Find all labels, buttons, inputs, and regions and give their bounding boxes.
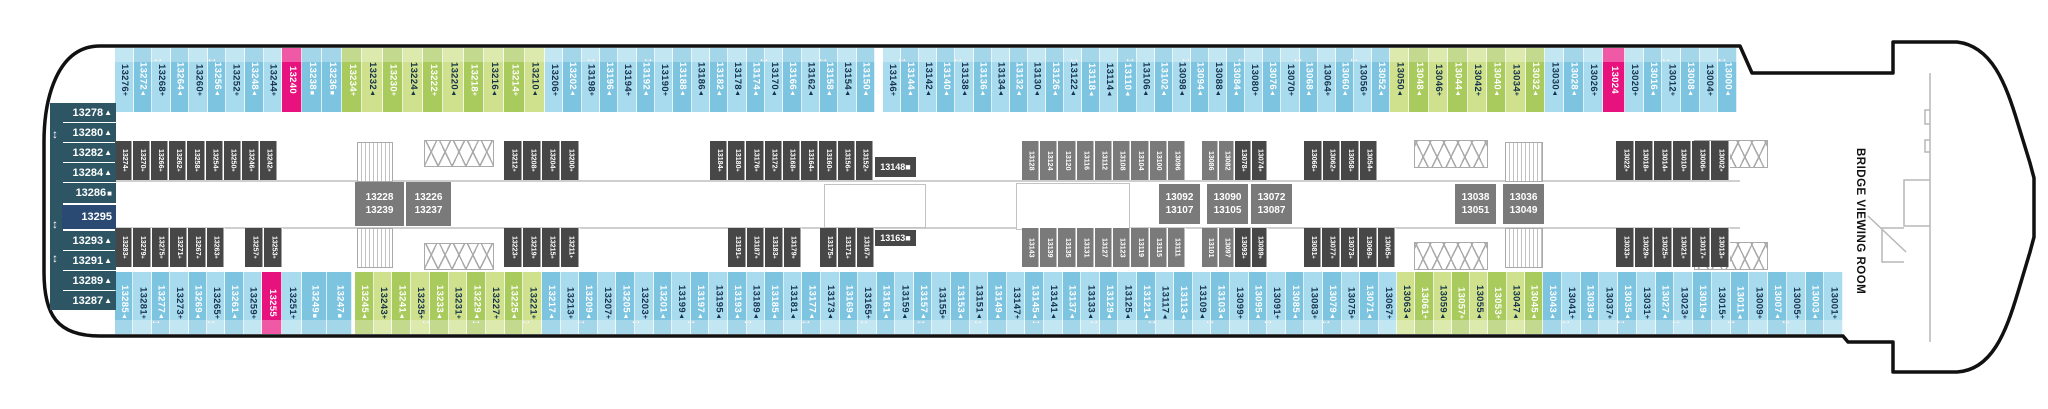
cabin-13210[interactable]: 13210▲ [525, 48, 545, 112]
cabin-13045[interactable]: 13045▲ [1525, 272, 1543, 334]
cabin-13173[interactable]: 13173▲ [821, 272, 840, 334]
cabin-13042[interactable]: 13042+ [1468, 48, 1487, 112]
cabin-13113[interactable]: 13113▲ [1174, 272, 1193, 334]
connecting-arrow-icon: ↔ [915, 314, 927, 326]
cabin-13168[interactable]: 13168+ [783, 141, 801, 180]
connecting-arrow-icon: ↔ [1124, 52, 1136, 64]
cabin-13118[interactable]: 13118▲ [1082, 48, 1100, 112]
plus-symbol: + [1347, 256, 1353, 259]
cabin-13253[interactable]: 13253+ [264, 228, 283, 267]
cabin-13057[interactable]: 13057+ [1452, 272, 1470, 334]
plus-symbol: + [1366, 169, 1372, 172]
cabin-13220[interactable]: 13220▲ [443, 48, 463, 112]
cabin-13212[interactable]: 13212+ [504, 141, 523, 180]
cabin-13241[interactable]: 13241▲ [392, 272, 411, 334]
cabin-number: 13118▲ [1087, 63, 1097, 98]
cabin-number: 13016▲ [1648, 62, 1658, 97]
cabin-13152[interactable]: 13152+ [856, 141, 874, 180]
cabin-number: 13077+ [1328, 236, 1336, 259]
cabin-13159[interactable]: 13159▲ [895, 272, 914, 334]
cabin-13137[interactable]: 13137▲ [1063, 272, 1082, 334]
cabin-13218[interactable]: 13218+ [464, 48, 484, 112]
cabin-13191[interactable]: 13191+ [728, 228, 747, 267]
cabin-13025[interactable]: 13025+ [1654, 228, 1673, 267]
cabin-13190[interactable]: 13190+ [655, 48, 673, 112]
cabin-number: 13258+ [193, 149, 201, 172]
cabin-13142[interactable]: 13142▲ [919, 48, 937, 112]
cabin-number: 13193▲ [732, 285, 742, 320]
cabin-13266[interactable]: 13266+ [151, 141, 169, 180]
cabin-13074[interactable]: 13074+ [1252, 141, 1269, 180]
cabin-13127[interactable]: 13127 [1095, 228, 1113, 267]
cabin-13018[interactable]: 13018+ [1635, 141, 1654, 180]
stairs-icon [357, 142, 393, 182]
cabin-number: 13262+ [175, 149, 183, 172]
cabin-13010[interactable]: 13010+ [1673, 141, 1692, 180]
cabin-13202[interactable]: 13202▲ [563, 48, 581, 112]
cabin-13062[interactable]: 13062+ [1323, 141, 1342, 180]
cabin-13271[interactable]: 13271+ [170, 228, 188, 267]
cabin-number: 13194+ [623, 64, 633, 96]
cabin-13186[interactable]: 13186▲ [692, 48, 710, 112]
cabin-13120[interactable]: 13120 [1058, 141, 1076, 180]
plus-symbol: + [1706, 92, 1713, 96]
cabin-13242[interactable]: 13242+ [260, 141, 278, 180]
cabin-13101[interactable]: 13101 [1202, 228, 1219, 267]
cabin-13054[interactable]: 13054+ [1360, 141, 1379, 180]
cabin-13058[interactable]: 13058+ [1341, 141, 1360, 180]
cabin-13104[interactable]: 13104 [1131, 141, 1149, 180]
cabin-13217[interactable]: 13217▲ [542, 272, 561, 334]
cabin-13283[interactable]: 13283+ [115, 228, 133, 267]
cabin-13176[interactable]: 13176+ [746, 141, 764, 180]
cabin-13219[interactable]: 13219+ [523, 228, 542, 267]
bottom-cabin-row-run: 13251+ [282, 272, 302, 334]
cabin-13178[interactable]: 13178▲ [728, 48, 746, 112]
cabin-13067[interactable]: 13067+ [1379, 272, 1398, 334]
cabin-13014[interactable]: 13014+ [1654, 141, 1673, 180]
cabin-13255[interactable]: 13255 [262, 272, 282, 334]
cabin-13169[interactable]: 13169▲ [840, 272, 859, 334]
cabin-13124[interactable]: 13124 [1040, 141, 1058, 180]
cabin-13167[interactable]: 13167+ [857, 228, 875, 267]
cabin-13249[interactable]: 13249■ [302, 272, 327, 334]
cabin-13078[interactable]: 13078+ [1235, 141, 1252, 180]
cabin-13128[interactable]: 13128 [1022, 141, 1040, 180]
cabin-number: 13131 [1082, 238, 1089, 257]
cabin-13130[interactable]: 13130▲ [1028, 48, 1046, 112]
cabin-13194[interactable]: 13194+ [618, 48, 636, 112]
plus-symbol: + [157, 169, 163, 172]
cabin-13129[interactable]: 13129▲ [1100, 272, 1119, 334]
cabin-13031[interactable]: 13031+ [1637, 272, 1656, 334]
cabin-13085[interactable]: 13085▲ [1286, 272, 1305, 334]
cabin-13029[interactable]: 13029+ [1635, 228, 1654, 267]
cabin-13247[interactable]: 13247■ [327, 272, 352, 334]
cabin-13250[interactable]: 13250+ [224, 141, 242, 180]
cabin-13245[interactable]: 13245▲ [355, 272, 374, 334]
cabin-13125[interactable]: 13125▲ [1118, 272, 1137, 334]
cabin-13064[interactable]: 13064+ [1318, 48, 1336, 112]
cabin-13092-13107[interactable]: 1309213107 [1159, 184, 1200, 224]
cabin-13102[interactable]: 13102▲ [1155, 48, 1173, 112]
cabin-number: 13263+ [212, 236, 220, 259]
cabin-13279[interactable]: 13279+ [133, 228, 151, 267]
cabin-13002[interactable]: 13002+ [1711, 141, 1730, 180]
cabin-13196[interactable]: 13196▲ [600, 48, 618, 112]
plus-symbol: + [789, 169, 795, 172]
bottom-cabin-row-run: 13043▲13041+13039▲13037+13035▲13031+1302… [1543, 272, 1843, 334]
cabin-number: 13110▲ [1123, 63, 1133, 98]
cabin-13182[interactable]: 13182▲ [710, 48, 728, 112]
lower-inside-row-run: 1314313139131351313113127131231311913115… [1022, 228, 1186, 267]
cabin-13276[interactable]: 13276+ [115, 48, 134, 112]
plus-symbol: + [551, 92, 558, 96]
plus-symbol: + [661, 92, 668, 96]
cabin-13172[interactable]: 13172+ [765, 141, 783, 180]
cabin-13216[interactable]: 13216▲ [484, 48, 504, 112]
plus-symbol: + [1717, 169, 1723, 172]
cabin-13291[interactable]: 13291▲ [62, 251, 116, 270]
triangle-symbol: ▲ [790, 313, 797, 320]
cabin-13264[interactable]: 13264▲ [171, 48, 190, 112]
plus-symbol: + [1236, 315, 1243, 319]
cabin-13106[interactable]: 13106▲ [1137, 48, 1155, 112]
cabin-13273[interactable]: 13273+ [170, 272, 188, 334]
cabin-number: 13132▲ [1014, 62, 1024, 97]
cabin-13278[interactable]: 13278▲ [62, 103, 116, 122]
cabin-13206[interactable]: 13206+ [545, 48, 563, 112]
triangle-symbol: ▲ [1124, 90, 1131, 97]
cabin-13155[interactable]: 13155+ [932, 272, 951, 334]
cabin-number: 13210▲ [530, 62, 540, 97]
cabin-13166[interactable]: 13166▲ [783, 48, 801, 112]
cabin-number: 13246+ [247, 149, 255, 172]
cabin-13233[interactable]: 13233▲ [430, 272, 449, 334]
cabin-13039[interactable]: 13039▲ [1581, 272, 1600, 334]
cabin-13282[interactable]: 13282▲ [62, 143, 116, 162]
cabin-13020[interactable]: 13020+ [1625, 48, 1644, 112]
cabin-13262[interactable]: 13262+ [169, 141, 187, 180]
cabin-13044[interactable]: 13044▲ [1448, 48, 1467, 112]
plus-symbol: + [1679, 256, 1685, 259]
triangle-symbol: ▲ [1396, 90, 1403, 97]
cabin-13240[interactable]: 13240 [282, 48, 302, 112]
cabin-13238[interactable]: 13238■ [302, 48, 322, 112]
plus-symbol: + [939, 315, 946, 319]
plus-symbol: + [1287, 92, 1294, 96]
cabin-number: 13195▲ [714, 285, 724, 320]
cabin-13272[interactable]: 13272▲ [134, 48, 153, 112]
cabin-number: 13047▲ [1511, 285, 1521, 320]
cabin-13270[interactable]: 13270+ [133, 141, 151, 180]
cabin-13090-13105[interactable]: 1309013105 [1207, 184, 1248, 224]
cabin-number: 13153▲ [956, 285, 966, 320]
cabin-number: 13060▲ [1340, 62, 1350, 97]
cabin-13289[interactable]: 13289▲ [62, 271, 116, 290]
cabin-number: 13139 [1046, 238, 1053, 257]
upper-inside-row-run: 1308613082 [1202, 141, 1235, 180]
cabin-13115[interactable]: 13115 [1150, 228, 1168, 267]
cabin-13236[interactable]: 13236■ [322, 48, 342, 112]
plus-symbol: + [641, 315, 648, 319]
cabin-13134[interactable]: 13134▲ [992, 48, 1010, 112]
cabin-13032[interactable]: 13032▲ [1526, 48, 1545, 112]
cabin-13228-13239[interactable]: 1322813239 [355, 182, 404, 226]
cabin-13246[interactable]: 13246+ [242, 141, 260, 180]
cabin-13006[interactable]: 13006+ [1692, 141, 1711, 180]
cabin-number: 13089+ [1256, 236, 1264, 259]
cabin-13043[interactable]: 13043▲ [1543, 272, 1562, 334]
cabin-13099[interactable]: 13099+ [1230, 272, 1249, 334]
plus-symbol: + [139, 315, 146, 319]
cabin-13139[interactable]: 13139 [1040, 228, 1058, 267]
connecting-arrow-icon: ↔ [817, 52, 829, 64]
cabin-13003[interactable]: 13003▲ [1806, 272, 1825, 334]
triangle-symbol: ▲ [1587, 313, 1594, 320]
cabin-13046[interactable]: 13046+ [1429, 48, 1448, 112]
cabin-13071[interactable]: 13071▲ [1360, 272, 1379, 334]
cabin-number: 13283+ [120, 236, 128, 259]
cabin-13259[interactable]: 13259+ [244, 272, 262, 334]
cabin-number: 13042+ [1472, 64, 1482, 96]
cabin-13254[interactable]: 13254+ [206, 141, 224, 180]
cabin-13017[interactable]: 13017+ [1692, 228, 1711, 267]
cabin-13081[interactable]: 13081+ [1304, 228, 1322, 267]
cabin-13293[interactable]: 13293▲ [62, 231, 116, 250]
cabin-13147[interactable]: 13147+ [1007, 272, 1026, 334]
cabin-13073[interactable]: 13073+ [1341, 228, 1359, 267]
cabin-number: 13190+ [659, 64, 669, 96]
cabin-13097[interactable]: 13097 [1219, 228, 1236, 267]
cabin-13287[interactable]: 13287▲ [62, 291, 116, 310]
cabin-13026[interactable]: 13026+ [1584, 48, 1603, 112]
cabin-13153[interactable]: 13153▲ [951, 272, 970, 334]
cabin-13047[interactable]: 13047▲ [1507, 272, 1525, 334]
cabin-13132[interactable]: 13132▲ [1010, 48, 1028, 112]
cabin-13069[interactable]: 13069+ [1359, 228, 1377, 267]
cabin-13227[interactable]: 13227+ [486, 272, 505, 334]
cabin-13048[interactable]: 13048▲ [1409, 48, 1428, 112]
cabin-13161[interactable]: 13161▲ [877, 272, 896, 334]
cabin-13024[interactable]: 13024 [1603, 48, 1625, 112]
cabin-13187[interactable]: 13187+ [747, 228, 766, 267]
cabin-13234[interactable]: 13234+ [342, 48, 362, 112]
cabin-13100[interactable]: 13100 [1150, 141, 1168, 180]
cabin-13114[interactable]: 13114▲ [1100, 48, 1118, 112]
cabin-number: 13183+ [771, 236, 779, 259]
cabin-13028[interactable]: 13028▲ [1564, 48, 1583, 112]
cabin-13040[interactable]: 13040▲ [1487, 48, 1506, 112]
cabin-13111[interactable]: 13111 [1168, 228, 1186, 267]
plus-symbol: + [1605, 315, 1612, 319]
cabin-13143[interactable]: 13143 [1022, 228, 1040, 267]
cabin-13089[interactable]: 13089+ [1252, 228, 1269, 267]
cabin-13141[interactable]: 13141▲ [1044, 272, 1063, 334]
cabin-13226-13237[interactable]: 1322613237 [406, 182, 451, 226]
cabin-13093[interactable]: 13093+ [1235, 228, 1252, 267]
cabin-13274[interactable]: 13274+ [115, 141, 133, 180]
cabin-13261[interactable]: 13261▲ [225, 272, 243, 334]
cabin-13252[interactable]: 13252+ [226, 48, 245, 112]
cabin-13055[interactable]: 13055▲ [1470, 272, 1488, 334]
cabin-13063[interactable]: 13063▲ [1397, 272, 1415, 334]
cabin-13215[interactable]: 13215+ [542, 228, 561, 267]
cabin-number: 13008▲ [1686, 62, 1696, 97]
cabin-13275[interactable]: 13275+ [152, 228, 170, 267]
cabin-13156[interactable]: 13156+ [838, 141, 856, 180]
cabin-13243[interactable]: 13243+ [374, 272, 393, 334]
cabin-13108[interactable]: 13108 [1113, 141, 1131, 180]
cabin-13207[interactable]: 13207+ [598, 272, 617, 334]
plus-symbol: + [430, 92, 437, 96]
cabin-13263[interactable]: 13263+ [207, 228, 225, 267]
cabin-13251[interactable]: 13251+ [282, 272, 302, 334]
cabin-number: 13018+ [1641, 149, 1649, 172]
cabin-number: 13260+ [194, 64, 204, 96]
plus-symbol: + [158, 92, 165, 96]
cabin-number: 13204+ [548, 149, 556, 172]
cabin-13224[interactable]: 13224▲ [403, 48, 423, 112]
cabin-number: 13268+ [157, 64, 167, 96]
triangle-symbol: ▲ [997, 90, 1004, 97]
plus-symbol: + [1717, 256, 1723, 259]
cabin-13034[interactable]: 13034+ [1506, 48, 1525, 112]
cabin-13160[interactable]: 13160+ [819, 141, 837, 180]
cabin-13214[interactable]: 13214+ [504, 48, 524, 112]
cabin-13131[interactable]: 13131 [1077, 228, 1095, 267]
cabin-13149[interactable]: 13149▲ [988, 272, 1007, 334]
cabin-13148[interactable]: 13148■ [875, 157, 916, 177]
cabin-13123[interactable]: 13123 [1113, 228, 1131, 267]
cabin-13150[interactable]: 13150▲ [857, 48, 875, 112]
plus-symbol: + [229, 169, 235, 172]
cabin-13163[interactable]: 13163■ [875, 230, 916, 246]
cabin-13072-13087[interactable]: 1307213087 [1251, 184, 1292, 224]
cabin-13179[interactable]: 13179+ [784, 228, 803, 267]
cabin-13204[interactable]: 13204+ [542, 141, 561, 180]
cabin-13022[interactable]: 13022+ [1616, 141, 1635, 180]
cabin-13135[interactable]: 13135 [1058, 228, 1076, 267]
cabin-13052[interactable]: 13052▲ [1372, 48, 1390, 112]
cabin-13188[interactable]: 13188▲ [673, 48, 691, 112]
cabin-13086[interactable]: 13086 [1202, 141, 1219, 180]
triangle-symbol: ▲ [121, 313, 128, 320]
cabin-13285[interactable]: 13285▲ [115, 272, 133, 334]
cabin-13200[interactable]: 13200+ [561, 141, 580, 180]
cabin-13175[interactable]: 13175+ [820, 228, 838, 267]
cabin-13232[interactable]: 13232▲ [362, 48, 382, 112]
cabin-13184[interactable]: 13184+ [710, 141, 728, 180]
cabin-13021[interactable]: 13021+ [1673, 228, 1692, 267]
cabin-13136[interactable]: 13136▲ [974, 48, 992, 112]
cabin-13223[interactable]: 13223+ [504, 228, 523, 267]
cabin-13154[interactable]: 13154▲ [838, 48, 856, 112]
cabin-13195[interactable]: 13195▲ [709, 272, 728, 334]
cabin-13013[interactable]: 13013+ [1711, 228, 1730, 267]
cabin-number: 13022+ [1622, 149, 1630, 172]
cabin-13231[interactable]: 13231+ [449, 272, 468, 334]
cabin-13061[interactable]: 13061+ [1415, 272, 1433, 334]
cabin-13030[interactable]: 13030▲ [1545, 48, 1564, 112]
triangle-symbol: ▲ [1378, 90, 1385, 97]
triangle-symbol: ▲ [907, 90, 914, 97]
cabin-13201[interactable]: 13201▲ [654, 272, 673, 334]
connecting-arrow-icon: ↔ [972, 314, 984, 326]
cabin-13258[interactable]: 13258+ [187, 141, 205, 180]
cabin-13230[interactable]: 13230+ [383, 48, 403, 112]
cabin-13077[interactable]: 13077+ [1322, 228, 1340, 267]
cabin-13075[interactable]: 13075+ [1342, 272, 1361, 334]
cabin-13096[interactable]: 13096 [1168, 141, 1186, 180]
cabin-13185[interactable]: 13185▲ [765, 272, 784, 334]
cabin-13116[interactable]: 13116 [1077, 141, 1095, 180]
connecting-arrow-icon: ↔ [1030, 314, 1042, 326]
cabin-13267[interactable]: 13267+ [188, 228, 206, 267]
plus-symbol: + [176, 315, 183, 319]
cabin-13248[interactable]: 13248▲ [245, 48, 264, 112]
cabin-13171[interactable]: 13171+ [838, 228, 856, 267]
cabin-13295[interactable]: 13295 [62, 205, 116, 229]
cabin-13088[interactable]: 13088▲ [1209, 48, 1227, 112]
cabin-13066[interactable]: 13066+ [1304, 141, 1323, 180]
cabin-13257[interactable]: 13257+ [245, 228, 264, 267]
cabin-13038-13051[interactable]: 1303813051 [1455, 184, 1496, 224]
cabin-13208[interactable]: 13208+ [523, 141, 542, 180]
cabin-13076[interactable]: 13076▲ [1263, 48, 1281, 112]
cabin-13094[interactable]: 13094▲ [1191, 48, 1209, 112]
stairs-icon [357, 228, 393, 268]
cabin-13019[interactable]: 13019▲ [1693, 272, 1712, 334]
cabin-number: 13138▲ [960, 62, 970, 97]
cabin-13082[interactable]: 13082 [1219, 141, 1236, 180]
cabin-13053[interactable]: 13053+ [1488, 272, 1506, 334]
plus-symbol: + [1641, 256, 1647, 259]
cabin-13180[interactable]: 13180+ [728, 141, 746, 180]
cabin-13164[interactable]: 13164+ [801, 141, 819, 180]
cabin-number: 13232▲ [368, 62, 378, 97]
cabin-13119[interactable]: 13119 [1131, 228, 1149, 267]
cabin-13112[interactable]: 13112 [1095, 141, 1113, 180]
cabin-13244[interactable]: 13244+ [264, 48, 283, 112]
cabin-13126[interactable]: 13126▲ [1046, 48, 1064, 112]
cabin-13050[interactable]: 13050▲ [1390, 48, 1409, 112]
cabin-13183[interactable]: 13183+ [765, 228, 784, 267]
cabin-13286[interactable]: 13286■ [62, 183, 116, 203]
connecting-arrow-icon: ↔ [1320, 314, 1332, 326]
cabin-13222[interactable]: 13222+ [423, 48, 443, 112]
cabin-13001[interactable]: 13001+ [1824, 272, 1843, 334]
cabin-number: 13224▲ [408, 62, 418, 97]
cabin-13211[interactable]: 13211+ [561, 228, 580, 267]
cabin-number: 13196▲ [604, 62, 614, 97]
cabin-13281[interactable]: 13281+ [133, 272, 151, 334]
cabin-13284[interactable]: 13284▲ [62, 163, 116, 182]
cabin-number: 13270+ [138, 149, 146, 172]
cabin-13033[interactable]: 13033+ [1616, 228, 1635, 267]
cabin-number: 13240 [287, 66, 297, 94]
plus-symbol: + [734, 169, 740, 172]
cabin-13065[interactable]: 13065+ [1378, 228, 1396, 267]
plus-symbol: + [1641, 169, 1647, 172]
cabin-13117[interactable]: 13117▲ [1156, 272, 1175, 334]
cabin-13009[interactable]: 13009+ [1749, 272, 1768, 334]
cabin-13059[interactable]: 13059▲ [1434, 272, 1452, 334]
cabin-13280[interactable]: 13280▲ [62, 123, 116, 142]
cabin-13008[interactable]: 13008▲ [1681, 48, 1700, 112]
cabin-13036-13049[interactable]: 1303613049 [1503, 184, 1544, 224]
cabin-number: 13100 [1155, 151, 1162, 170]
